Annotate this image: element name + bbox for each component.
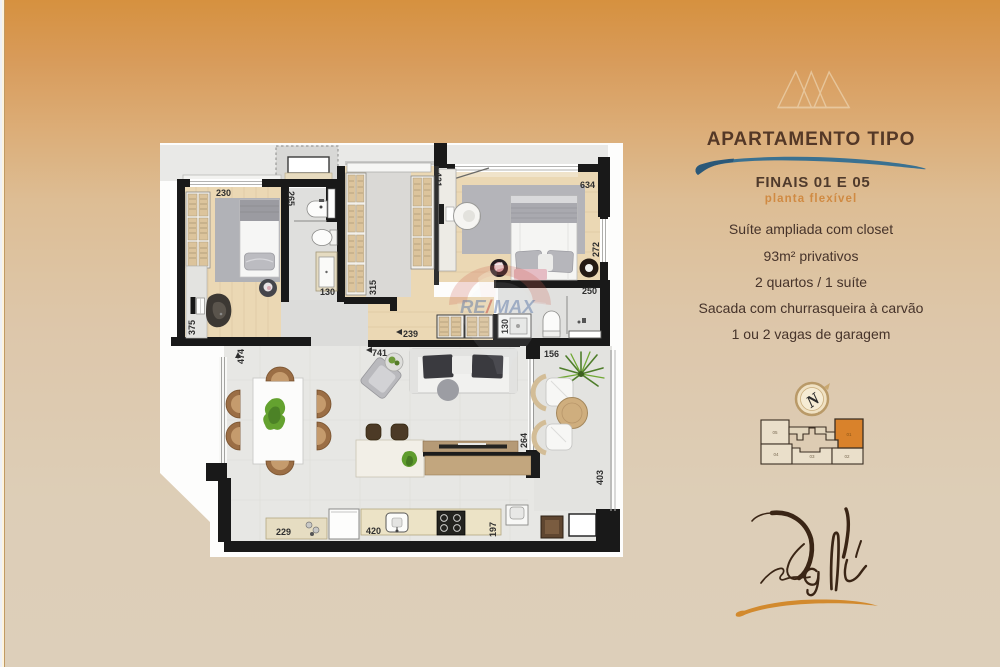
svg-text:229: 229 [276, 527, 291, 537]
svg-text:272: 272 [591, 242, 601, 257]
svg-text:741: 741 [372, 348, 387, 358]
svg-text:403: 403 [595, 470, 605, 485]
svg-text:01: 01 [846, 432, 852, 437]
svg-text:265: 265 [286, 191, 296, 206]
svg-text:239: 239 [403, 329, 418, 339]
svg-text:230: 230 [216, 188, 231, 198]
svg-text:634: 634 [580, 180, 595, 190]
svg-text:420: 420 [366, 526, 381, 536]
svg-text:250: 250 [582, 286, 597, 296]
svg-text:02: 02 [844, 454, 850, 459]
svg-text:197: 197 [488, 522, 498, 537]
svg-text:156: 156 [544, 349, 559, 359]
svg-text:375: 375 [187, 320, 197, 335]
svg-text:05: 05 [772, 430, 778, 435]
svg-text:130: 130 [320, 287, 335, 297]
svg-text:315: 315 [368, 280, 378, 295]
svg-text:264: 264 [519, 433, 529, 448]
svg-text:MAX: MAX [494, 296, 537, 317]
svg-text:RE: RE [460, 296, 486, 317]
svg-text:04: 04 [773, 452, 779, 457]
svg-text:421: 421 [433, 172, 443, 187]
svg-text:03: 03 [809, 454, 815, 459]
